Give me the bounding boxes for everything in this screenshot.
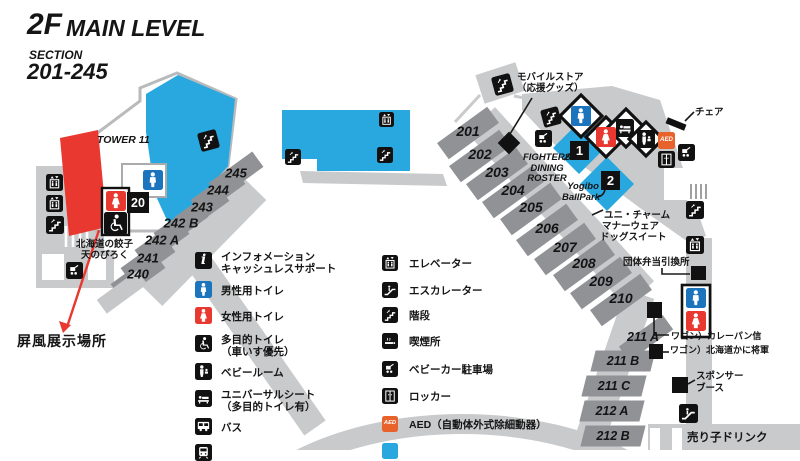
section-label: 211 A — [627, 330, 659, 344]
store-2-number: 2 — [601, 171, 620, 190]
locker-icon — [382, 388, 398, 404]
yogibo-label: BallPark — [562, 192, 600, 203]
legend-label: 階段 — [409, 308, 430, 323]
section-label: 209 — [589, 273, 612, 289]
dog-suite-label: ドッグスイート — [600, 229, 667, 243]
toilet-women-icon — [686, 311, 706, 331]
section-label: 240 — [127, 267, 149, 282]
mobile-store-label: （応援グッズ） — [517, 80, 584, 94]
section-label: 206 — [535, 220, 558, 236]
escalator-icon — [679, 404, 698, 423]
section-label: 212 B — [596, 429, 629, 443]
section-label: 212 A — [596, 404, 629, 418]
stroller-icon — [66, 262, 83, 279]
legend-label: （車いす優先） — [221, 344, 295, 359]
elevator-icon — [382, 255, 398, 271]
aed-icon: AED — [658, 132, 675, 149]
floor-title: 2F — [27, 8, 62, 42]
legend-label: （多目的トイレ有） — [221, 399, 316, 414]
store-1-number: 1 — [570, 141, 589, 160]
toilet-men-icon — [571, 106, 591, 126]
section-label: 208 — [572, 255, 595, 271]
section-range: 201-245 — [27, 59, 108, 85]
aed-icon-glyph: AED — [384, 421, 396, 427]
chair-label: チェア — [695, 104, 724, 118]
bus-icon — [195, 418, 212, 435]
stroller-icon — [382, 361, 398, 377]
bento-marker — [691, 266, 706, 280]
toilet-women-icon — [106, 191, 126, 211]
section-label: 242 A — [145, 233, 179, 248]
dining-label: ROSTER — [527, 173, 567, 184]
wheelchair-icon — [195, 335, 212, 352]
wagon-2-marker — [649, 344, 663, 359]
legend-label: ベビーカー駐車場 — [409, 362, 493, 377]
vendor-drink-label: 売り子ドリンク — [687, 429, 768, 445]
section-label: 211 B — [607, 354, 639, 368]
locker-icon — [658, 151, 675, 168]
legend-label: 喫煙所 — [409, 334, 441, 349]
stairs-icon — [382, 307, 398, 323]
wagon-label: ワゴン）カレーパン信 — [671, 329, 761, 342]
train-icon — [195, 444, 212, 461]
toilet-women-icon — [596, 127, 616, 147]
dining-label: DINING — [530, 163, 563, 174]
section-label: 207 — [553, 239, 576, 255]
legend-label: ベビールーム — [221, 365, 284, 380]
gate-20-label: 20 — [127, 192, 149, 213]
stroller-icon — [535, 130, 552, 147]
restaurant-label: 天のぴろく — [81, 247, 129, 261]
smoking-icon — [382, 333, 398, 349]
legend-label: 女性用トイレ — [221, 309, 284, 324]
section-label: 245 — [225, 166, 247, 181]
escalator-icon — [382, 282, 398, 298]
section-label: 244 — [207, 183, 229, 198]
stairs-icon — [46, 216, 64, 234]
yogibo-label: Yogibo — [567, 181, 599, 192]
legend-label: エスカレーター — [409, 283, 483, 298]
section-label: 204 — [501, 182, 524, 198]
info-icon: i — [195, 252, 212, 269]
baby-room-icon — [195, 363, 212, 380]
sponsor-booth-marker — [672, 377, 688, 393]
universal-sheet-icon — [616, 119, 634, 137]
universal-sheet-icon — [195, 390, 212, 407]
bento-label: 団体弁当引換所 — [623, 254, 690, 268]
toilet-men-icon — [686, 288, 706, 308]
elevator-icon — [46, 174, 63, 191]
exhibition-annotation: 屏風展示場所 — [17, 331, 107, 351]
stairs-icon — [686, 201, 704, 219]
info-icon-glyph: i — [201, 254, 206, 268]
elevator-icon — [686, 236, 704, 254]
wagon-1-marker — [647, 302, 662, 318]
legend-label: ロッカー — [409, 389, 451, 404]
section-label: 211 C — [598, 379, 630, 393]
section-label: 243 — [191, 200, 213, 215]
bowl-top-edge — [300, 171, 447, 186]
section-label: 202 — [468, 146, 491, 162]
stadium-map-page: { "title": { "floor": "2F", "level": "MA… — [0, 0, 800, 450]
shop-icon — [382, 443, 398, 459]
stairs-icon — [377, 147, 393, 163]
level-title: MAIN LEVEL — [66, 15, 205, 42]
elevator-icon — [379, 112, 394, 127]
section-label: 210 — [609, 290, 632, 306]
elevator-icon — [46, 195, 63, 212]
wagon-label: ワゴン）北海道かに将軍 — [670, 343, 769, 356]
aed-icon-glyph: AED — [660, 137, 673, 143]
section-label: 203 — [485, 164, 508, 180]
legend-label: エレベーター — [409, 256, 472, 271]
legend-label: 男性用トイレ — [221, 283, 284, 298]
legend-label: バス — [221, 420, 242, 435]
wheelchair-icon — [104, 212, 127, 235]
tower-label: TOWER 11 — [97, 134, 150, 146]
toilet-men-icon — [143, 170, 163, 190]
section-label: 241 — [137, 251, 159, 266]
aed-icon: AED — [382, 416, 398, 432]
baby-room-icon — [637, 130, 655, 148]
dining-label: FIGHTERS — [523, 152, 571, 163]
stairs-icon — [285, 149, 301, 165]
section-label: 201 — [456, 123, 479, 139]
toilet-women-icon — [195, 307, 212, 324]
sponsor-booth-label: ブース — [696, 380, 724, 394]
section-label: 205 — [519, 199, 542, 215]
toilet-men-icon — [195, 281, 212, 298]
legend-label: AED（自動体外式除細動器） — [409, 417, 547, 432]
legend-label: キャッシュレスサポート — [221, 261, 336, 276]
section-label: 242 B — [164, 216, 199, 231]
stroller-icon — [678, 144, 695, 161]
